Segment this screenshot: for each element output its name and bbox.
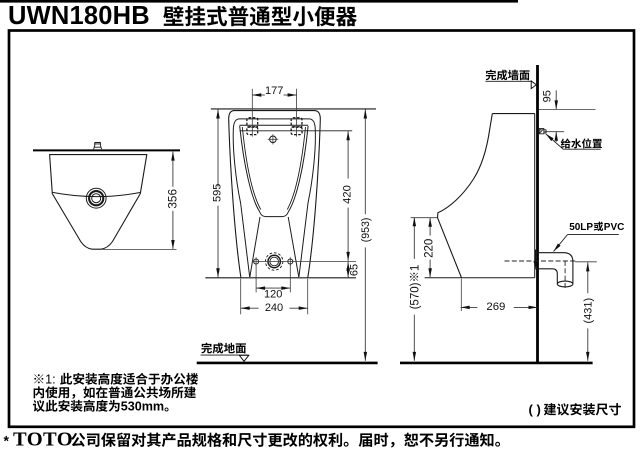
svg-text:530mm: 530mm [121,400,164,414]
svg-text:240: 240 [265,302,283,314]
svg-text:177: 177 [265,85,283,97]
svg-text:UWN180HB: UWN180HB [8,2,150,30]
svg-text:220: 220 [424,239,436,258]
svg-text:65: 65 [349,264,361,276]
svg-text:(431): (431) [582,298,594,324]
svg-text:420: 420 [342,185,354,204]
svg-text:120: 120 [264,288,282,300]
svg-text:TOTO: TOTO [13,429,73,451]
svg-text:95: 95 [542,90,554,102]
svg-text:356: 356 [165,189,179,209]
svg-text:50LP: 50LP [569,222,593,233]
svg-text:(570): (570) [409,282,421,309]
svg-text:( ): ( ) [529,402,541,417]
svg-text:(953): (953) [360,218,372,243]
svg-text:1:: 1: [45,373,56,387]
svg-text:PVC: PVC [604,222,625,233]
svg-text:1: 1 [409,265,421,271]
svg-text:269: 269 [486,301,505,313]
svg-text:595: 595 [212,184,224,202]
svg-text:*: * [4,433,10,449]
